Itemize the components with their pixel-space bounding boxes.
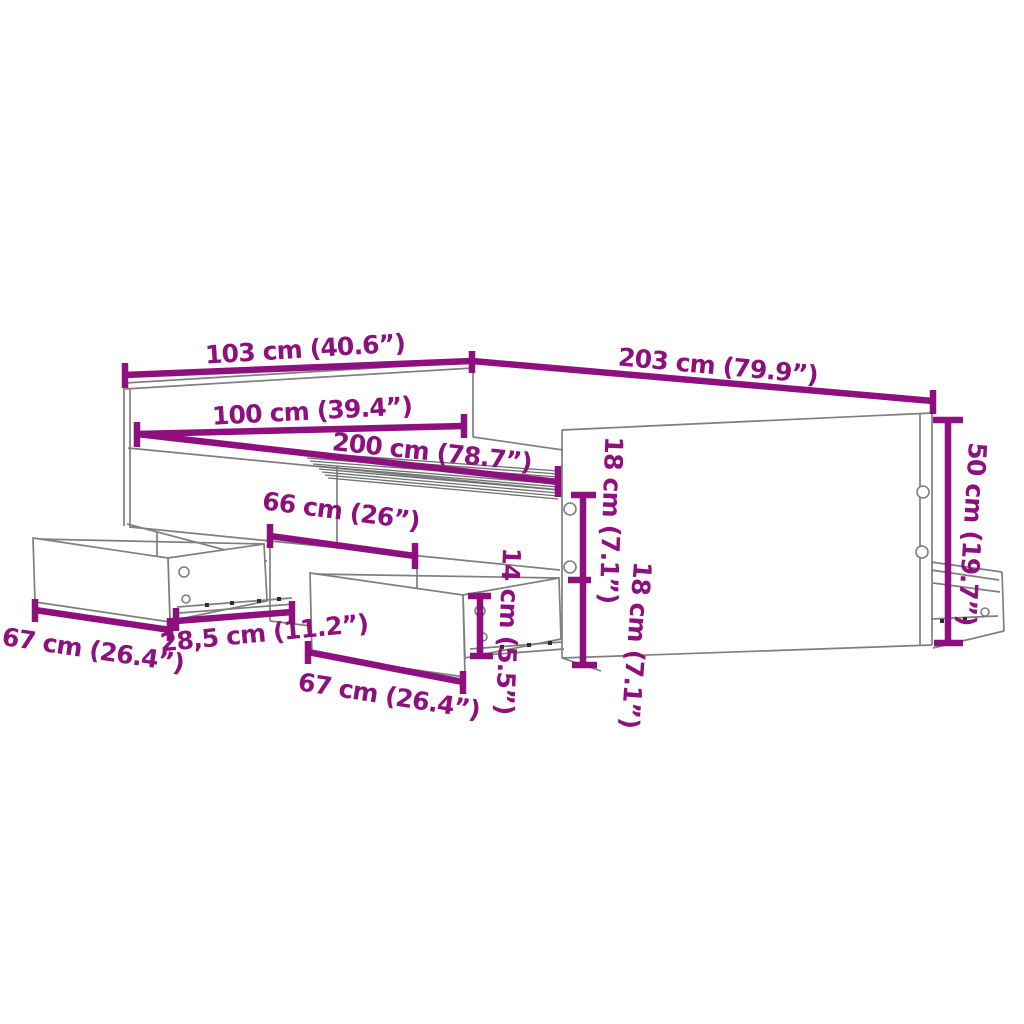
label-panel-height: 50 cm (19.7”) xyxy=(952,441,992,626)
dimension-diagram: 103 cm (40.6”) 203 cm (79.9”) 100 cm (39… xyxy=(0,0,1024,1024)
slide-screw xyxy=(548,641,552,645)
dim-hole-spacing xyxy=(568,495,597,666)
slide-screw xyxy=(277,597,281,601)
panel-hole xyxy=(564,503,576,515)
label-hole-spacing-upper: 18 cm (7.1”) xyxy=(594,436,629,604)
drawer-hole xyxy=(179,567,189,577)
label-drawer-opening: 66 cm (26”) xyxy=(261,486,422,535)
panel-hole xyxy=(564,561,576,573)
slide-screw xyxy=(257,599,261,603)
slide-screw xyxy=(230,601,234,605)
slide-screw xyxy=(527,643,531,647)
bed-frame-diagram-svg: 103 cm (40.6”) 203 cm (79.9”) 100 cm (39… xyxy=(0,0,1024,1024)
panel-hole xyxy=(916,546,928,558)
drawer-hole xyxy=(182,595,190,603)
slide-screw xyxy=(205,603,209,607)
slide-screw xyxy=(940,619,944,623)
panel-hole xyxy=(917,486,929,498)
drawer-left xyxy=(33,538,294,622)
label-drawer-front-height: 14 cm (5.5”) xyxy=(490,547,526,715)
